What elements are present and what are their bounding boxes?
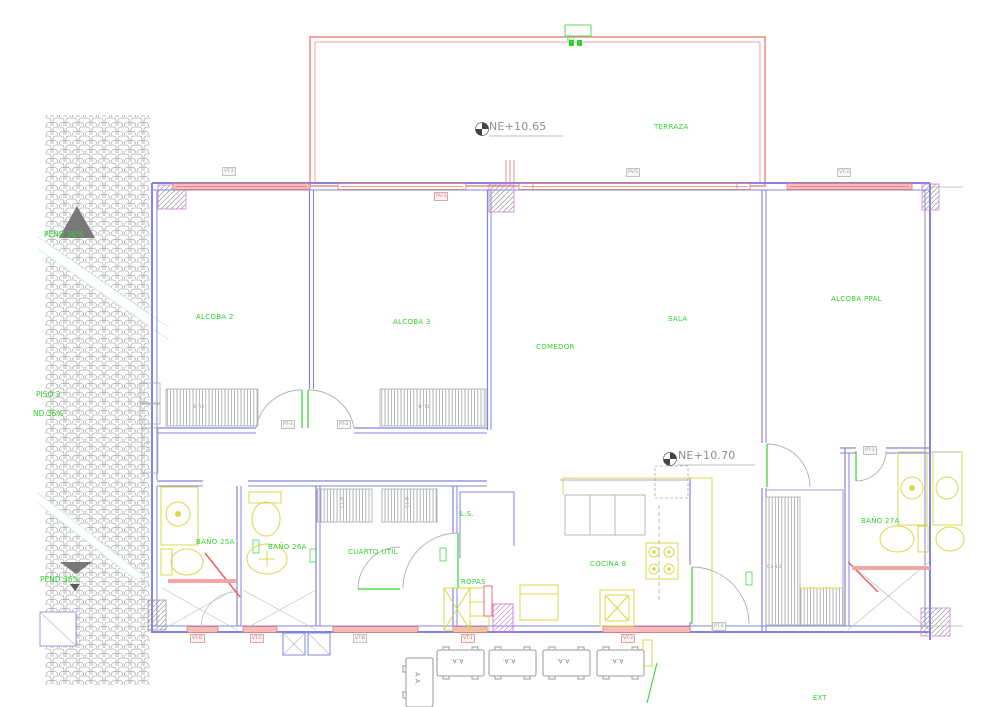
room-label-terraza: TERRAZA: [654, 124, 689, 131]
level-label-floor: NE+10.70: [678, 450, 736, 461]
beam-marker: [577, 40, 582, 46]
tag-pt-1: PT-1: [712, 622, 726, 631]
roof-pend-top: PEND 36%: [44, 231, 84, 239]
closet-label-util-2: CL-B: [406, 497, 411, 508]
tag-pt-2-alcoba3: PT-2: [337, 420, 351, 429]
roof-piso-2: PISO 2: [36, 391, 61, 399]
closet-label-alcoba2: CL-B: [193, 402, 204, 407]
tag-b-1: B-1: [567, 39, 575, 44]
tag-pv-3: PV-3: [434, 192, 448, 201]
tag-vt-c: VT-C: [250, 634, 264, 643]
shafts: [283, 633, 330, 655]
kitchen-counters: [565, 466, 688, 600]
room-label-bano-27a: BAÑO 27A: [861, 518, 900, 525]
ac-unit-label-2: A.A.: [502, 657, 515, 663]
windows: [173, 160, 912, 633]
exit-leader-line: [647, 663, 657, 703]
tag-pt-3-alcoba2: PT-3: [281, 420, 295, 429]
room-label-alcoba-3: ALCOBA 3: [393, 319, 431, 326]
balcony-drain-marker: [565, 25, 591, 36]
room-label-bano-25a: BAÑO 25A: [196, 539, 235, 546]
duct: [484, 586, 492, 616]
room-label-ls: L.S.: [460, 511, 474, 518]
room-label-bano-26a: BAÑO 26A: [268, 544, 307, 551]
tag-vt-2: VT-2: [222, 167, 236, 176]
room-label-ropas: ROPAS: [461, 579, 486, 586]
tag-pt-3-bano27a: PT-3: [863, 446, 877, 455]
ac-units: [403, 647, 644, 707]
roof-pend-low: PEND 36%: [40, 576, 80, 584]
closet-label-util-1: CL-B: [341, 497, 346, 508]
room-label-cuarto-util: CUARTO UTIL: [348, 549, 398, 556]
tag-vt-d: VT-D: [190, 634, 205, 643]
terrace-outline: [310, 37, 765, 186]
room-label-cocina-8: COCINA 8: [590, 561, 626, 568]
tag-vt-b: VT-B: [353, 634, 367, 643]
room-label-sala: SALA: [668, 316, 687, 323]
closet-label-alcoba3: CL-B: [418, 402, 429, 407]
dimension-lines: [931, 187, 963, 626]
floor-plan-drawing: [0, 0, 1000, 707]
room-label-alcoba-ppal: ALCOBA PPAL: [831, 296, 882, 303]
duct-hatched: [493, 604, 513, 632]
walls: [152, 183, 930, 640]
roof-hatch: [38, 115, 168, 685]
ac-unit-label-1: A.A.: [450, 657, 463, 663]
tag-pv-5: PV-5: [626, 168, 640, 177]
fixtures: [161, 452, 964, 666]
level-label-terrace: NE+10.65: [489, 121, 547, 132]
roof-pend-mid: ND 36%: [33, 410, 63, 418]
tag-vt-3-top: VT-3: [837, 168, 851, 177]
ac-unit-label-5: A.A.: [414, 672, 420, 685]
room-label-comedor: COMEDOR: [536, 344, 575, 351]
label-ext: EXT: [813, 695, 826, 702]
closet-label-hall: CL-B: [147, 441, 152, 452]
room-label-alcoba-2: ALCOBA 2: [196, 314, 234, 321]
ac-unit-label-4: A.A.: [610, 657, 623, 663]
tag-vt-1: VT-1: [461, 634, 475, 643]
ac-unit-label-3: A.A.: [556, 657, 569, 663]
closet-label-ppal: CL-13: [767, 566, 781, 571]
tag-vt-3-bottom: VT-3: [621, 634, 635, 643]
floor-plan-canvas: TERRAZA ALCOBA 2 ALCOBA 3 SALA COMEDOR A…: [0, 0, 1000, 707]
